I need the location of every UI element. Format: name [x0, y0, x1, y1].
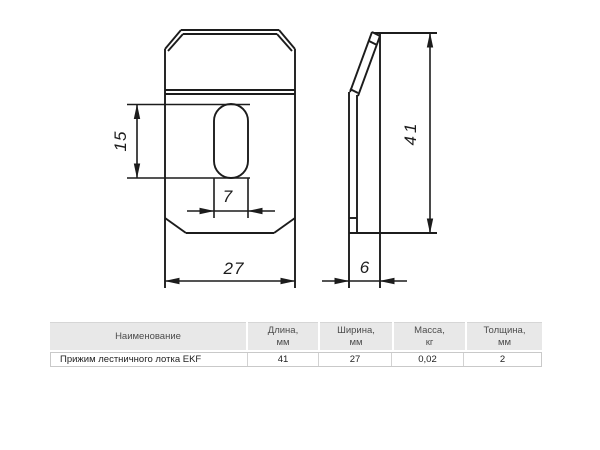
header-thickness-unit: мм	[498, 337, 511, 349]
front-slot	[214, 104, 248, 178]
cell-length: 41	[247, 353, 318, 366]
slot-width-dimension-label: 7	[223, 187, 233, 206]
header-thickness: Толщина, мм	[467, 322, 542, 350]
front-bottom-left-chamfer	[165, 218, 186, 233]
depth-dimension-label: 6	[360, 258, 370, 277]
dimension-slot-length: 15	[111, 105, 250, 179]
front-view-dimensions: 15 7 27	[111, 105, 295, 282]
dimension-depth: 6	[322, 258, 407, 281]
cell-thickness: 2	[463, 353, 541, 366]
header-width: Ширина, мм	[320, 322, 392, 350]
cell-product-name: Прижим лестничного лотка EKF	[51, 353, 247, 366]
header-mass: Масса, кг	[394, 322, 465, 350]
technical-drawing: 15 7 27	[0, 0, 600, 312]
header-length: Длина, мм	[248, 322, 318, 350]
front-view	[165, 30, 295, 288]
side-hook-outer	[350, 32, 372, 92]
width-dimension-label: 27	[223, 259, 245, 278]
cell-width: 27	[318, 353, 391, 366]
specs-table: Наименование Длина, мм Ширина, мм Масса,…	[50, 322, 542, 367]
header-thickness-title: Толщина,	[484, 325, 526, 337]
header-width-title: Ширина,	[337, 325, 375, 337]
header-mass-title: Масса,	[414, 325, 445, 337]
header-length-title: Длина,	[268, 325, 298, 337]
dimension-width: 27	[165, 259, 295, 281]
dimension-slot-width: 7	[187, 178, 275, 218]
side-view-dimensions: 41 6	[322, 33, 430, 281]
header-name: Наименование	[50, 322, 246, 350]
cell-mass: 0,02	[391, 353, 463, 366]
header-length-unit: мм	[276, 337, 289, 349]
dimension-height: 41	[401, 33, 430, 233]
side-hook-tip-chamfer	[369, 41, 377, 45]
product-drawing-page: 15 7 27	[0, 0, 600, 450]
header-mass-unit: кг	[426, 337, 434, 349]
side-view	[349, 32, 437, 288]
header-name-title: Наименование	[115, 331, 181, 343]
specs-table-row: Прижим лестничного лотка EKF 41 27 0,02 …	[50, 352, 542, 367]
height-dimension-label: 41	[401, 121, 420, 146]
header-width-unit: мм	[349, 337, 362, 349]
front-bottom-right-chamfer	[274, 218, 295, 233]
specs-table-header: Наименование Длина, мм Ширина, мм Масса,…	[50, 322, 542, 350]
slot-length-dimension-label: 15	[111, 131, 130, 152]
